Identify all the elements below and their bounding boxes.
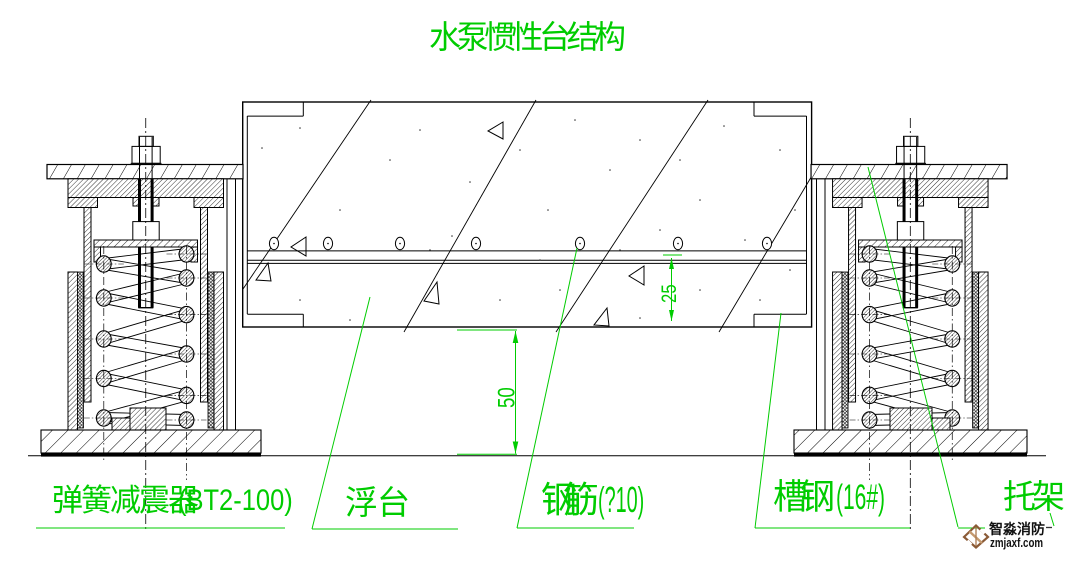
svg-text:50: 50 <box>493 387 520 408</box>
svg-text:托架: 托架 <box>1003 478 1064 515</box>
svg-text:25: 25 <box>658 284 681 303</box>
svg-text:(16#): (16#) <box>836 479 885 518</box>
svg-text:槽钢: 槽钢 <box>773 478 833 517</box>
svg-text:弹簧减震器: 弹簧减震器 <box>52 483 199 518</box>
svg-text:水泵惯性台结构: 水泵惯性台结构 <box>429 19 624 55</box>
svg-text:浮台: 浮台 <box>345 484 409 521</box>
svg-text:zmjaxf.com: zmjaxf.com <box>990 537 1043 551</box>
svg-text:智淼消防: 智淼消防 <box>988 521 1045 537</box>
svg-text:(?10): (?10) <box>598 481 644 521</box>
svg-text:(BT2-100): (BT2-100) <box>178 483 293 516</box>
